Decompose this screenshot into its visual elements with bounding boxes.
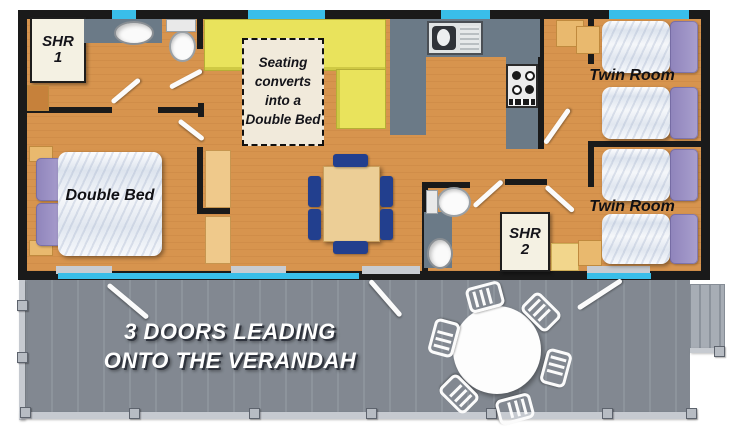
rail-post [129,408,140,419]
verandah-note-line1: 3 DOORS LEADING [85,318,375,347]
pillow [670,214,698,264]
window [248,10,325,19]
shelf [27,85,49,111]
dining-chair [308,176,321,207]
rail-post [486,408,497,419]
shower-cubicle-1: SHR 1 [30,17,86,83]
twin-room-1-label: Twin Room [572,67,692,85]
wall [588,141,701,147]
wall [505,179,547,185]
wall [197,147,203,214]
double-bedroom-label: Double Bed [62,186,158,205]
rail-post [366,408,377,419]
window [609,10,689,19]
twin-room-2-label: Twin Room [572,198,692,216]
wall [198,103,204,117]
dining-chair [333,241,368,254]
seating-note-box: Seating converts into a Double Bed [242,38,324,146]
sink-icon [114,21,154,45]
wall [588,141,594,187]
seating-note: Seating converts into a Double Bed [244,54,322,130]
dining-table [323,166,380,242]
rail-post [17,352,28,363]
stove-icon [506,64,538,108]
shower-2-number: 2 [521,242,529,258]
twin-bed [602,214,670,264]
shower-cubicle-2: SHR 2 [500,212,550,272]
twin-bed [602,87,670,139]
wardrobe [205,150,231,208]
window [112,10,136,19]
verandah-note-line2: ONTO THE VERANDAH [85,347,375,376]
shower-2-abbr: SHR [509,226,541,242]
door-threshold [362,266,420,274]
wardrobe [205,216,231,264]
pillow [670,21,698,73]
pillow [670,149,698,201]
dining-chair [380,176,393,207]
dining-chair [380,209,393,240]
cabinet [576,26,600,54]
verandah-steps [690,284,725,352]
pillow [670,87,698,139]
toilet-icon [437,187,471,217]
outdoor-round-table [453,306,541,394]
cabinet [578,240,602,266]
floor-plan: 3 DOORS LEADING ONTO THE VERANDAH SHR 1 [0,0,750,430]
dining-chair [333,154,368,167]
verandah-rail-bottom [19,412,696,419]
twin-bed [602,21,670,73]
twin-bed [602,149,670,201]
rail-post [602,408,613,419]
rail-post [714,346,725,357]
wall [197,208,230,214]
rail-post [249,408,260,419]
kitchen-counter-left [390,57,426,135]
kitchen-sink-icon [427,21,483,55]
sink-icon [427,238,453,269]
verandah-note: 3 DOORS LEADING ONTO THE VERANDAH [85,318,375,375]
wall [422,182,470,188]
rail-post [686,408,697,419]
window [58,273,359,279]
dining-chair [308,209,321,240]
cabinet [551,243,579,271]
rail-post [17,300,28,311]
shower-1-abbr: SHR [42,34,74,50]
window [441,10,490,19]
toilet-icon [169,31,196,62]
rail-post [20,407,31,418]
wall [197,19,203,49]
shower-1-number: 1 [54,50,62,66]
sofa-side-section [336,69,386,129]
